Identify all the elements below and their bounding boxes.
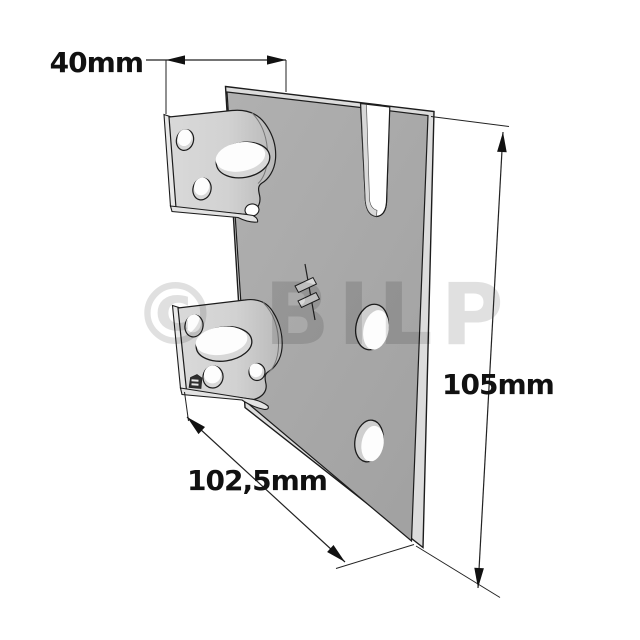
dimension-label-offset: 40mm <box>50 46 143 79</box>
product-diagram: © BILP 40mm 105mm 102,5mm <box>0 0 640 640</box>
arrowhead-right <box>267 55 286 64</box>
extension-line <box>416 546 500 598</box>
lower-tab-hole-right <box>249 363 265 380</box>
arrowhead-left <box>166 55 185 64</box>
extension-line <box>336 545 414 569</box>
extension-line <box>185 392 189 421</box>
arrowhead-up <box>497 132 507 152</box>
extension-line <box>431 117 509 127</box>
watermark-text: © BILP <box>132 265 511 365</box>
top-notch-slot <box>361 104 390 217</box>
upper-hinge-tab <box>164 110 276 222</box>
bracket-drawing: © BILP 40mm 105mm 102,5mm <box>0 0 640 640</box>
dimension-label-width: 102,5mm <box>187 464 327 497</box>
dimension-label-height: 105mm <box>442 368 554 401</box>
